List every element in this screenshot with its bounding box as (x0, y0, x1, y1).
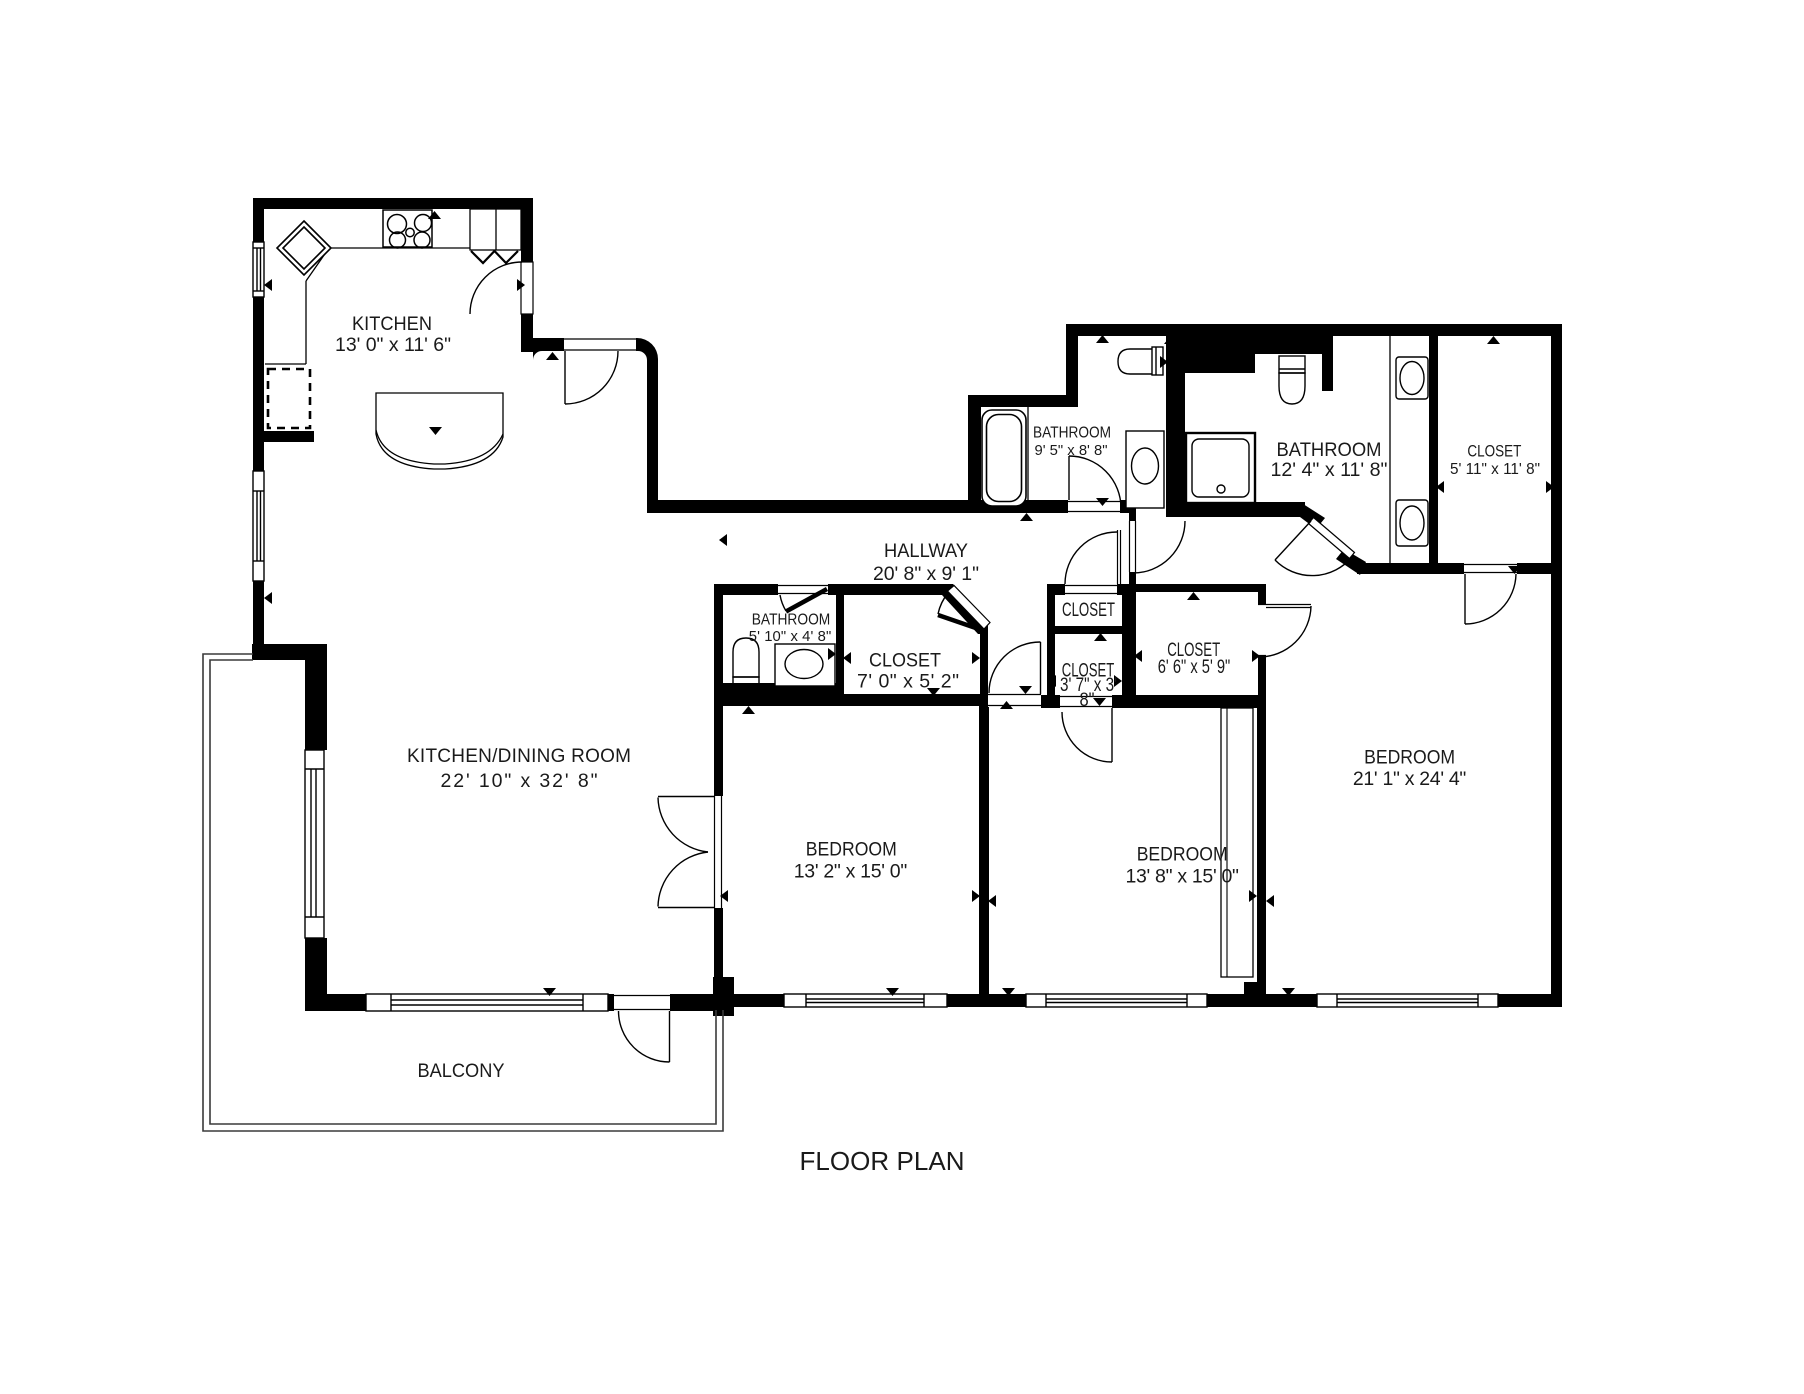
svg-text:5' 11" x 11' 8": 5' 11" x 11' 8" (1450, 461, 1540, 478)
svg-text:5' 10" x 4' 8": 5' 10" x 4' 8" (749, 629, 832, 645)
svg-text:KITCHEN/DINING ROOM: KITCHEN/DINING ROOM (407, 746, 631, 767)
svg-text:20' 8" x 9' 1": 20' 8" x 9' 1" (873, 563, 979, 585)
svg-text:12' 4" x 11' 8": 12' 4" x 11' 8" (1271, 459, 1388, 481)
svg-text:8": 8" (1080, 689, 1095, 711)
svg-text:BEDROOM: BEDROOM (806, 840, 897, 861)
svg-text:BALCONY: BALCONY (418, 1061, 505, 1082)
svg-text:21' 1" x 24' 4": 21' 1" x 24' 4" (1353, 768, 1467, 790)
svg-text:13' 8" x 15' 0": 13' 8" x 15' 0" (1125, 865, 1239, 887)
svg-text:HALLWAY: HALLWAY (884, 541, 968, 562)
svg-text:BATHROOM: BATHROOM (752, 612, 831, 629)
svg-text:9' 5" x 8' 8": 9' 5" x 8' 8" (1035, 443, 1108, 459)
svg-text:7' 0" x 5' 2": 7' 0" x 5' 2" (857, 671, 959, 693)
svg-text:BEDROOM: BEDROOM (1364, 747, 1455, 768)
svg-text:13' 0" x 11' 6": 13' 0" x 11' 6" (335, 334, 451, 356)
svg-text:CLOSET: CLOSET (1467, 443, 1521, 461)
svg-text:BEDROOM: BEDROOM (1137, 845, 1228, 866)
svg-text:CLOSET: CLOSET (869, 651, 941, 672)
svg-text:6' 6" x 5' 9": 6' 6" x 5' 9" (1158, 656, 1231, 678)
svg-text:FLOOR PLAN: FLOOR PLAN (800, 1146, 965, 1176)
svg-text:BATHROOM: BATHROOM (1033, 425, 1111, 442)
svg-text:KITCHEN: KITCHEN (352, 314, 432, 335)
svg-text:BATHROOM: BATHROOM (1277, 440, 1382, 461)
svg-text:13' 2" x 15' 0": 13' 2" x 15' 0" (794, 861, 908, 883)
svg-text:CLOSET: CLOSET (1062, 600, 1115, 621)
